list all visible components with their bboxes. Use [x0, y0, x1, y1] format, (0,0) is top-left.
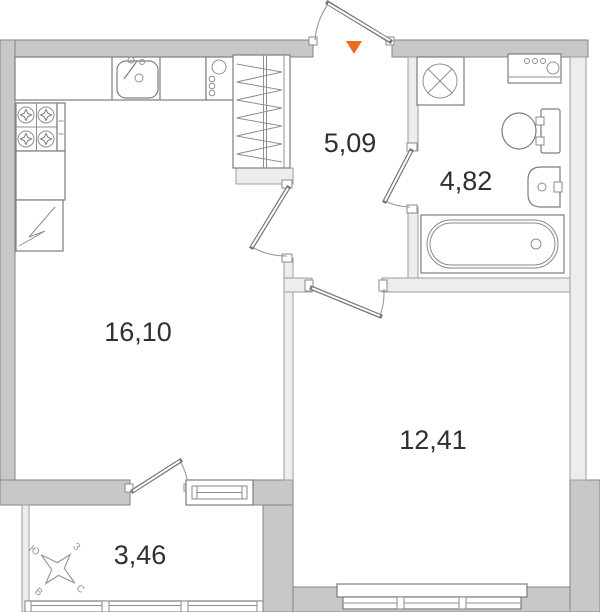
- wardrobe-icon: [233, 55, 290, 168]
- balcony-window: [186, 480, 253, 505]
- entrance-marker-icon: [346, 41, 362, 54]
- room-label-bathroom: 4,82: [440, 166, 493, 196]
- stove-icon: [16, 103, 65, 151]
- living-room-door: [252, 180, 292, 262]
- compass-east-label: В: [32, 586, 44, 599]
- kitchen-sink-icon: [117, 57, 158, 98]
- wall-balcony-right: [263, 505, 293, 612]
- bathroom-door: [385, 143, 417, 213]
- bedroom-window: [337, 584, 527, 609]
- room-label-kitchen-living: 16,10: [104, 317, 172, 347]
- wall-living-bottom-right: [253, 480, 293, 505]
- wall-right-lower: [570, 480, 600, 612]
- entry-door-jamb-left: [309, 37, 317, 45]
- bathtub-icon: [421, 215, 564, 273]
- room-label-balcony: 3,46: [114, 540, 167, 570]
- balcony-door: [125, 461, 191, 492]
- bedroom-door-swing-arc: [380, 289, 384, 316]
- bathroom-fixtures: [417, 54, 564, 273]
- entry-door-swing-arc: [315, 4, 328, 40]
- wall-right-upper: [570, 57, 586, 480]
- balcony-glazing: [25, 601, 263, 612]
- kitchen-cabinet: [16, 151, 65, 200]
- compass-north-label: С: [74, 583, 87, 596]
- toilet-icon: [502, 109, 560, 153]
- compass-west-label: З: [70, 541, 82, 553]
- room-label-hallway: 5,09: [324, 128, 377, 158]
- floor-plan: З С В Ю 16,10 5,09 4,82 12,41 3,46: [0, 0, 600, 612]
- entry-door: [309, 3, 394, 54]
- wall-bathroom-left-lower: [408, 207, 418, 278]
- wall-living-bottom-left: [0, 480, 130, 505]
- washbasin-icon: [528, 167, 562, 207]
- bathroom-door-swing-arc: [385, 201, 410, 207]
- room-label-bedroom: 12,41: [399, 425, 467, 455]
- bedroom-door: [305, 280, 387, 316]
- kitchen-fixtures: [15, 55, 290, 251]
- hob-icon: [206, 57, 234, 100]
- wall-balcony-left: [22, 505, 29, 612]
- kitchen-counter: [15, 57, 206, 100]
- bathroom-counter-icon: [508, 54, 561, 83]
- floor-plan-canvas: З С В Ю 16,10 5,09 4,82 12,41 3,46: [0, 0, 600, 612]
- wall-left: [0, 40, 15, 505]
- wall-bathroom-bottom: [382, 278, 570, 292]
- washing-machine-icon: [417, 57, 464, 105]
- fridge-icon: [16, 200, 63, 251]
